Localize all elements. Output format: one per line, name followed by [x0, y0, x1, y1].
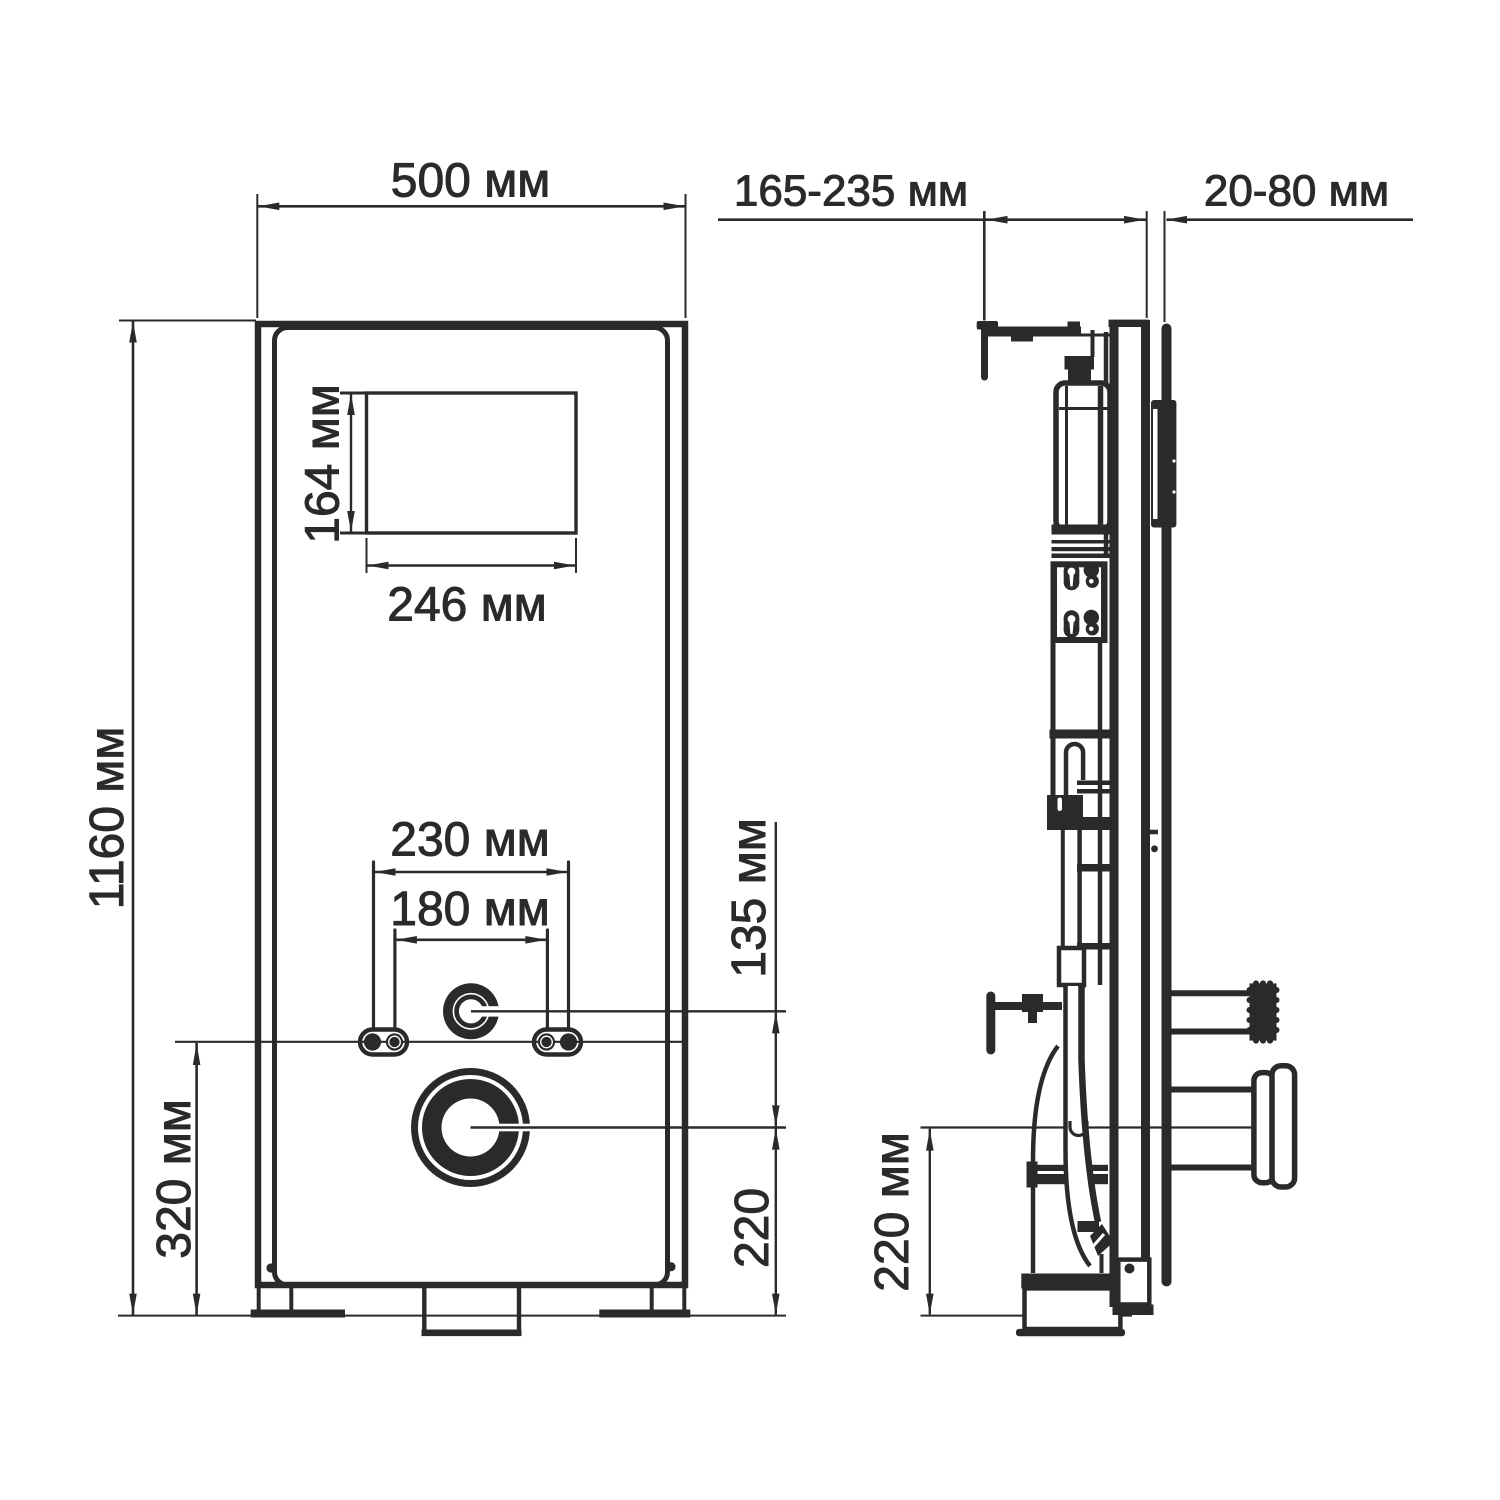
svg-text:180 мм: 180 мм [390, 883, 549, 936]
svg-text:1160 мм: 1160 мм [81, 727, 134, 910]
svg-text:20-80 мм: 20-80 мм [1204, 167, 1389, 216]
svg-text:230 мм: 230 мм [390, 814, 549, 867]
svg-text:320 мм: 320 мм [148, 1099, 201, 1258]
svg-text:164 мм: 164 мм [297, 384, 350, 543]
svg-text:220: 220 [726, 1188, 779, 1268]
svg-text:220 мм: 220 мм [866, 1132, 919, 1291]
svg-text:165-235 мм: 165-235 мм [734, 167, 968, 216]
svg-text:500 мм: 500 мм [391, 155, 550, 208]
svg-text:135 мм: 135 мм [723, 818, 776, 977]
svg-text:246 мм: 246 мм [387, 579, 546, 632]
